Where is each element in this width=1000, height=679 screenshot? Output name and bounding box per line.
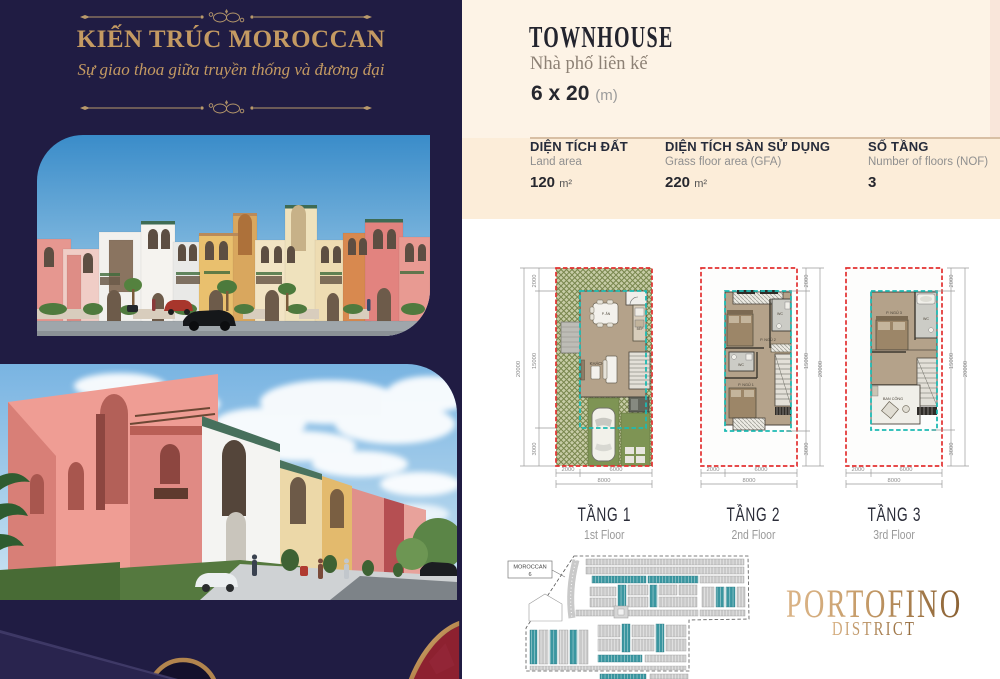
- svg-text:P. NGỦ 1: P. NGỦ 1: [738, 382, 754, 387]
- svg-text:6: 6: [528, 572, 531, 578]
- svg-text:6000: 6000: [755, 467, 768, 473]
- svg-text:3000: 3000: [532, 443, 538, 456]
- svg-text:6000: 6000: [900, 467, 913, 473]
- svg-text:3000: 3000: [949, 443, 955, 456]
- svg-text:2000: 2000: [532, 275, 538, 288]
- svg-text:P. NGỦ 2: P. NGỦ 2: [760, 337, 776, 342]
- svg-text:WC: WC: [923, 317, 929, 321]
- svg-text:20000: 20000: [516, 361, 522, 377]
- svg-text:P. NGỦ 3: P. NGỦ 3: [886, 310, 902, 315]
- svg-text:3000: 3000: [804, 443, 810, 456]
- svg-text:8000: 8000: [743, 478, 756, 484]
- svg-text:20000: 20000: [963, 361, 969, 377]
- svg-text:8000: 8000: [598, 478, 611, 484]
- svg-text:KHÁCH: KHÁCH: [590, 361, 605, 366]
- svg-text:8000: 8000: [888, 478, 901, 484]
- svg-text:15000: 15000: [949, 353, 955, 369]
- svg-text:2000: 2000: [804, 275, 810, 288]
- svg-text:2000: 2000: [562, 467, 575, 473]
- svg-text:2000: 2000: [949, 275, 955, 288]
- svg-text:2000: 2000: [852, 467, 865, 473]
- svg-text:P. ĂN: P. ĂN: [602, 312, 611, 316]
- svg-text:6000: 6000: [610, 467, 623, 473]
- svg-text:WC: WC: [777, 312, 783, 316]
- svg-text:WC: WC: [738, 363, 744, 367]
- svg-text:BẾP: BẾP: [637, 326, 645, 331]
- svg-text:15000: 15000: [804, 353, 810, 369]
- svg-text:15000: 15000: [532, 353, 538, 369]
- svg-text:MOROCCAN: MOROCCAN: [513, 565, 546, 571]
- svg-text:20000: 20000: [818, 361, 824, 377]
- svg-text:2000: 2000: [707, 467, 720, 473]
- svg-text:BAN CÔNG: BAN CÔNG: [883, 396, 903, 401]
